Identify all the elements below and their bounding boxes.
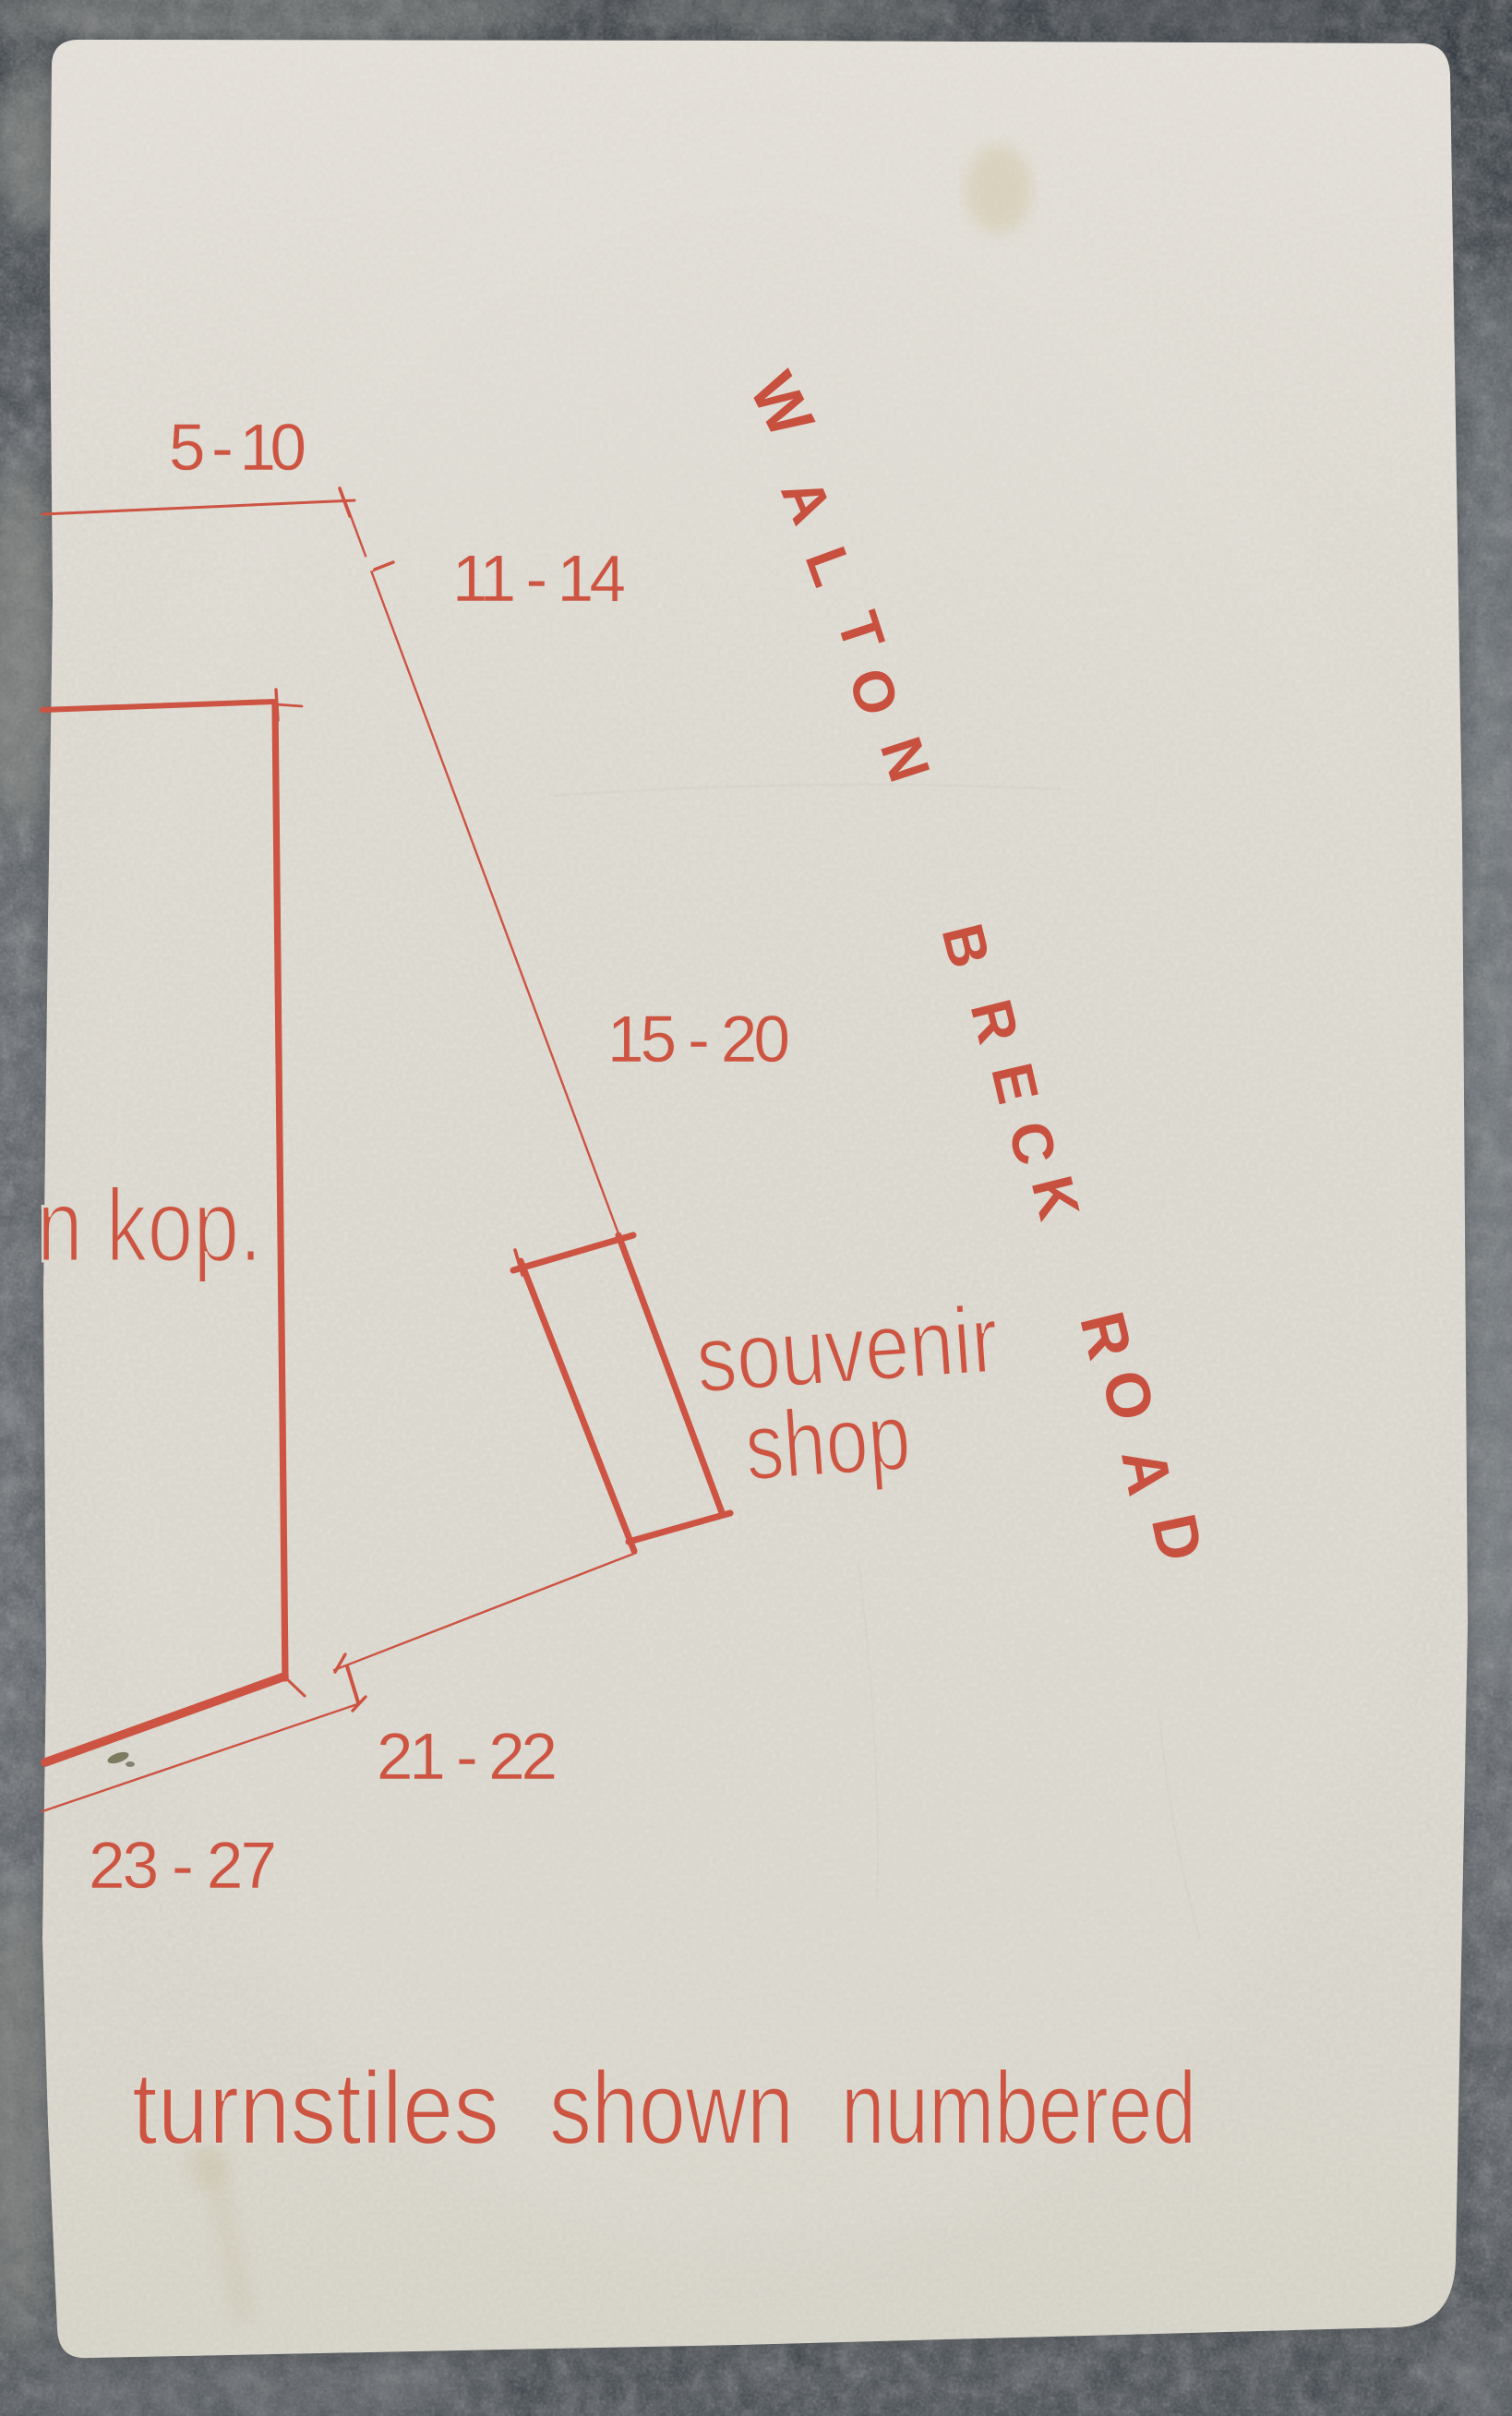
svg-text:turnstiles: turnstiles: [132, 2050, 499, 2166]
svg-text:shop: shop: [742, 1383, 914, 1500]
svg-text:15 - 20: 15 - 20: [607, 1004, 790, 1076]
svg-text:5 - 10: 5 - 10: [169, 412, 306, 485]
svg-text:shown: shown: [549, 2050, 794, 2166]
svg-text:21 - 22: 21 - 22: [377, 1721, 558, 1794]
svg-text:23 - 27: 23 - 27: [89, 1830, 277, 1903]
svg-text:n kop.: n kop.: [37, 1169, 262, 1284]
svg-text:numbered: numbered: [841, 2050, 1196, 2166]
svg-text:11 - 14: 11 - 14: [452, 543, 626, 616]
